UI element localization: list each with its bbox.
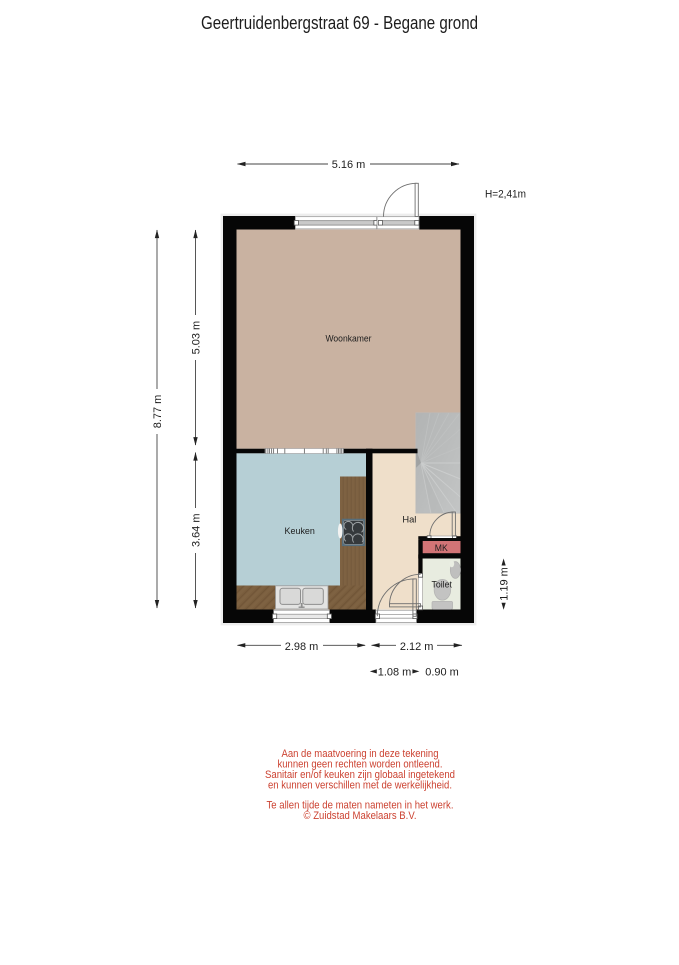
svg-text:8.77 m: 8.77 m [152, 395, 164, 429]
svg-text:Geertruidenbergstraat 69 - Beg: Geertruidenbergstraat 69 - Begane grond [201, 12, 478, 33]
svg-text:5.03 m: 5.03 m [190, 321, 202, 355]
svg-text:MK: MK [435, 543, 449, 554]
svg-text:2.98 m: 2.98 m [285, 641, 319, 653]
svg-text:5.16 m: 5.16 m [332, 159, 366, 171]
svg-text:Keuken: Keuken [285, 526, 315, 537]
svg-text:H=2,41m: H=2,41m [485, 188, 526, 200]
svg-text:2.12 m: 2.12 m [400, 641, 434, 653]
svg-text:3.64 m: 3.64 m [190, 514, 202, 548]
svg-text:en kunnen verschillen met de w: en kunnen verschillen met de werkelijkhe… [268, 780, 452, 792]
svg-text:1.08 m: 1.08 m [378, 666, 412, 678]
svg-text:© Zuidstad Makelaars B.V.: © Zuidstad Makelaars B.V. [304, 810, 417, 822]
svg-text:Woonkamer: Woonkamer [326, 333, 372, 344]
svg-text:Hal: Hal [402, 514, 416, 525]
svg-text:1.19 m: 1.19 m [498, 567, 510, 601]
svg-text:0.90 m: 0.90 m [425, 666, 459, 678]
svg-text:Toilet: Toilet [432, 580, 453, 591]
